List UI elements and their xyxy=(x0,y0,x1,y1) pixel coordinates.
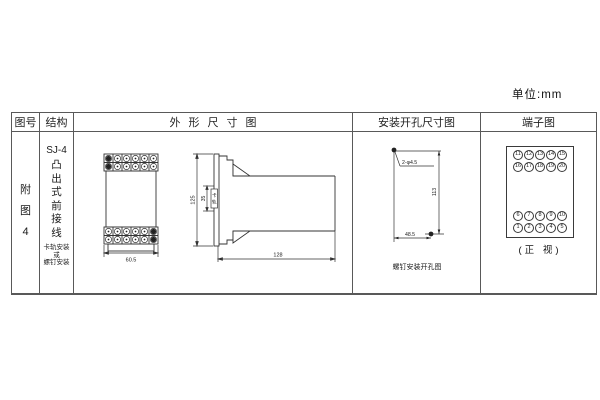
mount-line: 螺钉安装 xyxy=(40,259,73,267)
side-view xyxy=(211,154,335,246)
terminal-circle: 19 xyxy=(546,162,556,172)
header-install-holes: 安装开孔尺寸图 xyxy=(353,113,481,131)
header-structure: 结构 xyxy=(40,113,74,131)
dim-vertical: 113 xyxy=(432,188,438,196)
header-terminal-diagram: 端子图 xyxy=(481,113,596,131)
install-caption: 螺钉安装开孔图 xyxy=(393,262,442,271)
table-header-row: 图号 结构 外形尺寸图 安装开孔尺寸图 端子图 xyxy=(12,113,596,132)
terminal-circle: 16 xyxy=(513,162,523,172)
front-view xyxy=(104,154,158,251)
header-outline-dims: 外形尺寸图 xyxy=(74,113,353,131)
mount-line: 或 xyxy=(40,252,73,260)
terminal-circle: 9 xyxy=(546,211,556,221)
terminal-circle: 20 xyxy=(557,162,567,172)
type-char: 式 xyxy=(40,186,73,200)
figure-char: 附 xyxy=(12,180,39,201)
table-body-row: 附 图 4 SJ-4 凸 出 式 前 接 线 卡轨安装 或 xyxy=(12,132,596,293)
terminal-circle: 17 xyxy=(524,162,534,172)
terminal-circle: 1 xyxy=(513,223,523,233)
type-char: 凸 xyxy=(40,159,73,173)
terminal-circle: 11 xyxy=(513,150,523,160)
mount-line: 卡轨安装 xyxy=(40,244,73,252)
terminal-circle: 15 xyxy=(557,150,567,160)
hole-spec-label: 2-φ4.5 xyxy=(402,160,417,166)
terminal-circle: 7 xyxy=(524,211,534,221)
terminal-circle: 12 xyxy=(524,150,534,160)
outline-drawing: 60.5 xyxy=(74,132,353,293)
terminal-diagram-cell: 11 12 13 14 15 16 17 18 19 20 6 7 8 9 10… xyxy=(481,132,596,293)
type-char: 线 xyxy=(40,227,73,241)
dim-horizontal: 48.5 xyxy=(405,232,415,238)
figure-no-cell: 附 图 4 xyxy=(12,132,40,293)
unit-label: 单位:mm xyxy=(512,86,562,102)
figure-no-text: 附 图 4 xyxy=(12,180,39,243)
header-figure-no: 图号 xyxy=(12,113,40,131)
mount-note: 卡轨安装 或 螺钉安装 xyxy=(40,244,73,267)
terminal-circle: 4 xyxy=(546,223,556,233)
dim-front-width: 60.5 xyxy=(126,258,137,264)
terminal-circle: 2 xyxy=(524,223,534,233)
terminal-circle: 13 xyxy=(535,150,545,160)
terminal-circle: 14 xyxy=(546,150,556,160)
terminal-circle: 18 xyxy=(535,162,545,172)
rail-label-char: 卡 xyxy=(212,192,217,199)
model-label: SJ-4 xyxy=(40,145,73,156)
outline-drawing-cell: 60.5 xyxy=(74,132,353,293)
terminal-circle: 8 xyxy=(535,211,545,221)
type-char: 接 xyxy=(40,213,73,227)
structure-cell: SJ-4 凸 出 式 前 接 线 卡轨安装 或 螺钉安装 xyxy=(40,132,74,293)
structure-type-text: 凸 出 式 前 接 线 xyxy=(40,159,73,240)
rail-label-char: 轨 xyxy=(212,199,217,206)
spec-table: 图号 结构 外形尺寸图 安装开孔尺寸图 端子图 附 图 4 SJ-4 凸 出 xyxy=(11,112,597,295)
dim-depth: 128 xyxy=(273,253,282,259)
drawing-sheet: 单位:mm 图号 结构 外形尺寸图 安装开孔尺寸图 端子图 附 图 4 SJ-4 xyxy=(0,0,600,400)
figure-char: 4 xyxy=(12,222,39,243)
terminal-circle: 3 xyxy=(535,223,545,233)
type-char: 前 xyxy=(40,200,73,214)
terminal-caption: (正 视) xyxy=(495,242,585,256)
install-drawing: 2-φ4.5 113 48.5 螺钉安装开孔图 xyxy=(353,132,481,293)
dim-side-height: 125 xyxy=(191,195,197,204)
figure-char: 图 xyxy=(12,201,39,222)
terminal-circle: 6 xyxy=(513,211,523,221)
terminal-circle: 5 xyxy=(557,223,567,233)
type-char: 出 xyxy=(40,173,73,187)
terminal-circle: 10 xyxy=(557,211,567,221)
dim-rail-width: 35 xyxy=(201,196,207,202)
install-drawing-cell: 2-φ4.5 113 48.5 螺钉安装开孔图 xyxy=(353,132,481,293)
